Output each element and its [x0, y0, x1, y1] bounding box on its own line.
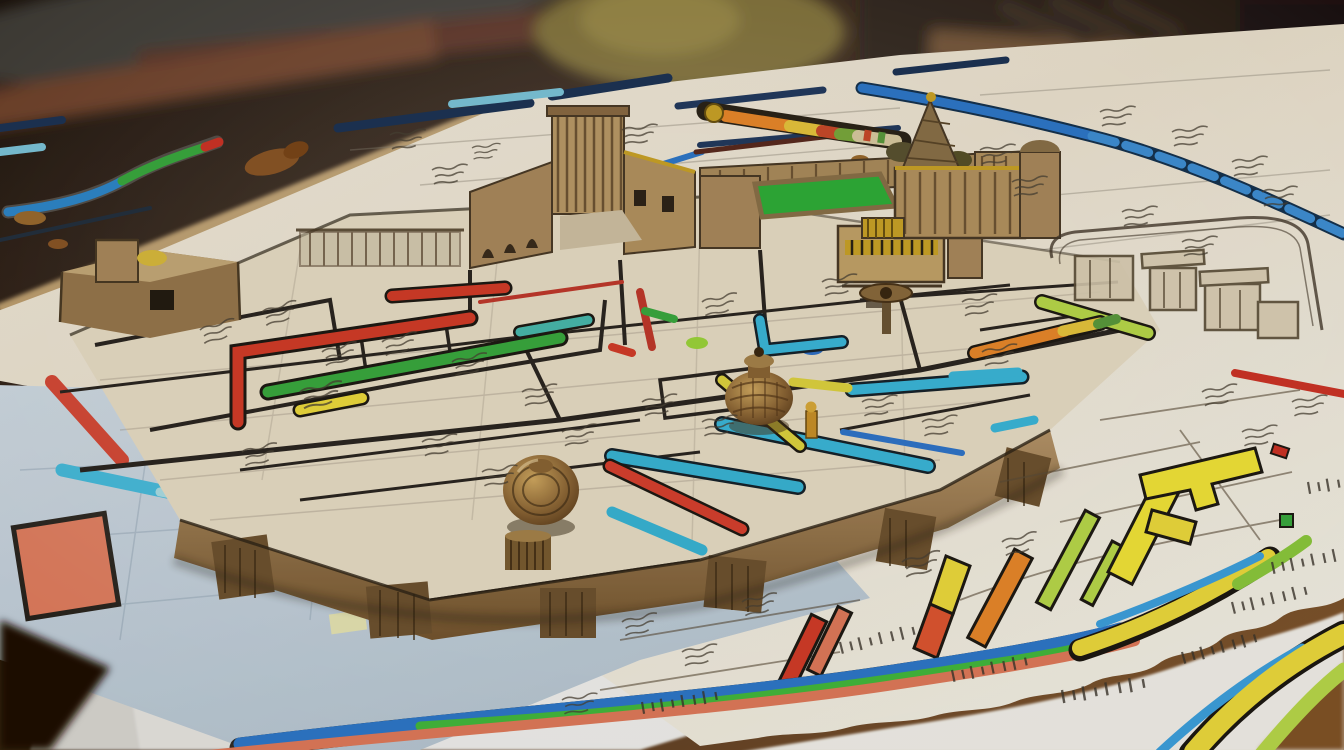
tone-overlay [0, 0, 1344, 750]
scene-canvas [0, 0, 1344, 750]
blueprint-map-photo [0, 0, 1344, 750]
